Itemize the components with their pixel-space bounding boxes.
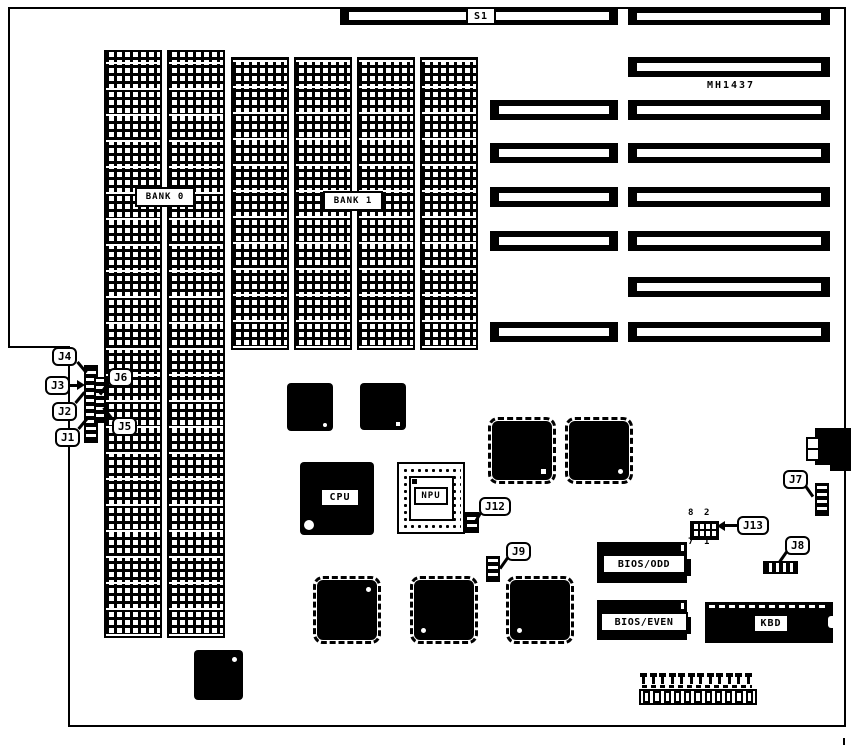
connector-stripe	[637, 283, 821, 291]
connector-stripe	[499, 237, 609, 245]
connector-stripe	[637, 237, 821, 245]
bank1-label: BANK 1	[323, 191, 383, 211]
connector-cell	[725, 691, 732, 703]
expansion-slot-short	[490, 187, 618, 207]
jumper-j4-callout: J4	[52, 347, 77, 366]
cpu-label: CPU	[320, 488, 360, 507]
bios-odd-label: BIOS/ODD	[602, 554, 686, 574]
qfp-chip	[569, 421, 629, 480]
memory-column-2	[167, 50, 225, 638]
connector-stripe	[499, 149, 609, 157]
expansion-slot-long	[628, 231, 830, 251]
connector-stripe	[499, 193, 609, 201]
j13-pin1-number: 1	[704, 537, 709, 547]
edge-notch	[828, 616, 833, 628]
expansion-slot-short	[490, 231, 618, 251]
memory-column-3	[231, 57, 289, 350]
callout-arrow-head	[717, 521, 725, 531]
jumper-j1-callout: J1	[55, 428, 80, 447]
power-connector-body	[639, 689, 757, 705]
pin1-dot	[323, 423, 327, 427]
pin1-dot	[421, 628, 426, 633]
connector-pin	[726, 673, 733, 684]
jumper-j2-callout: J2	[52, 402, 77, 421]
s1-label-text: S1	[474, 11, 488, 22]
qfp-chip	[414, 580, 474, 640]
expansion-slot-long	[628, 187, 830, 207]
qfp-chip	[317, 580, 377, 640]
din-pin-block	[806, 448, 820, 461]
board-outline-right	[844, 7, 846, 727]
din-connector-step	[830, 465, 851, 471]
expansion-slot-short	[490, 143, 618, 163]
jumper-j12-callout: J12	[479, 497, 511, 516]
board-outline-bottom	[68, 725, 846, 727]
jumper-j9-callout: J9	[506, 542, 531, 561]
connector-pin	[650, 673, 657, 684]
j7-jumper	[815, 483, 829, 516]
expansion-slot-long	[628, 322, 830, 342]
board-outline-left-upper	[8, 7, 10, 348]
expansion-slot-short	[490, 322, 618, 342]
pin1-dot	[517, 628, 522, 633]
connector-stripe	[499, 328, 609, 336]
connector-stripe	[637, 149, 821, 157]
dashed-separator	[709, 605, 829, 608]
j9-jumper	[486, 556, 500, 582]
connector-stripe	[637, 328, 821, 336]
din-connector	[815, 428, 851, 465]
corner-tick-mark	[843, 738, 845, 745]
logic-chip	[287, 383, 333, 431]
connector-cell	[653, 691, 660, 703]
connector-stripe	[499, 106, 609, 114]
connector-cell	[684, 691, 691, 703]
power-connector-dashes	[642, 685, 752, 688]
npu-socket: NPU	[397, 462, 465, 534]
motherboard-diagram: S1 MH1437 BANK 0 BANK 1 CPU	[0, 0, 851, 753]
notch-tick	[681, 603, 684, 609]
jumper-j7-callout: J7	[783, 470, 808, 489]
pin1-marker	[412, 479, 417, 484]
pin1-dot	[232, 657, 237, 662]
connector-cell	[674, 691, 681, 703]
expansion-slot-long	[628, 143, 830, 163]
s1-label: S1	[466, 7, 496, 25]
callout-arrow-head	[77, 380, 85, 390]
connector-stripe	[637, 63, 821, 71]
jumper-j8-callout: J8	[785, 536, 810, 555]
expansion-slot-long	[628, 100, 830, 120]
connector-cell	[705, 691, 712, 703]
connector-pin	[707, 673, 714, 684]
connector-pin	[745, 673, 752, 684]
pin1-dot	[396, 422, 400, 426]
part-number-label: MH1437	[698, 80, 764, 91]
connector-stripe	[637, 193, 821, 201]
notch-tick	[681, 545, 684, 551]
pin1-dot	[541, 469, 546, 474]
connector-cell	[715, 691, 722, 703]
expansion-slot-long	[628, 57, 830, 77]
npu-label: NPU	[414, 487, 448, 505]
expansion-slot-long	[628, 277, 830, 297]
connector-stripe	[637, 106, 821, 114]
connector-pin	[697, 673, 704, 684]
connector-pin	[669, 673, 676, 684]
connector-pin	[688, 673, 695, 684]
j13-pin8-number: 8	[688, 508, 693, 518]
qfp-chip	[492, 421, 552, 480]
connector-pin	[659, 673, 666, 684]
bios-even-label: BIOS/EVEN	[600, 612, 688, 632]
jumper-j5-callout: J5	[112, 417, 137, 436]
j13-pin7-number: 7	[688, 537, 693, 547]
pin1-dot	[366, 587, 371, 592]
qfp-chip	[510, 580, 570, 640]
connector-pin	[640, 673, 647, 684]
logic-chip	[194, 650, 243, 700]
connector-cell	[746, 691, 753, 703]
connector-pin	[678, 673, 685, 684]
bank0-label: BANK 0	[135, 187, 195, 207]
connector-pin	[735, 673, 742, 684]
memory-column-1	[104, 50, 162, 638]
connector-pin	[716, 673, 723, 684]
jumper-j3-callout: J3	[45, 376, 70, 395]
pin1-dot	[304, 520, 314, 530]
connector-cell	[643, 691, 650, 703]
callout-arrow-line	[724, 524, 737, 527]
kbd-label: KBD	[753, 614, 789, 633]
jumper-j13-callout: J13	[737, 516, 769, 535]
top-right-edge-connector	[628, 8, 830, 25]
connector-cell	[735, 691, 742, 703]
jumper-j6-callout: J6	[108, 368, 133, 387]
power-connector-pins	[640, 673, 752, 684]
connector-cell	[664, 691, 671, 703]
connector-cell	[694, 691, 701, 703]
logic-chip	[360, 383, 406, 430]
bios-odd-tab	[687, 559, 691, 576]
pin1-dot	[618, 469, 623, 474]
j13-pin2-number: 2	[704, 508, 709, 518]
connector-stripe	[637, 13, 821, 20]
memory-column-6	[420, 57, 478, 350]
expansion-slot-short	[490, 100, 618, 120]
